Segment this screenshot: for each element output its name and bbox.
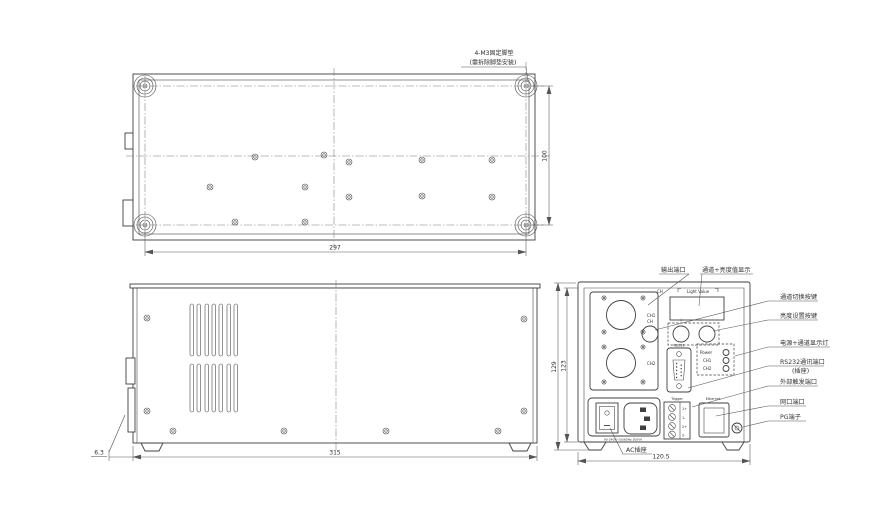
led-label-power: Power <box>700 350 712 355</box>
foot-left <box>141 443 163 451</box>
side-view: 315 6.3 <box>91 280 540 461</box>
bottom-view: 4-M3固定脚垫 (需拆除脚垫安装) 297 100 <box>123 49 553 256</box>
callout-pg-terminal: PG端子 <box>780 413 801 421</box>
engineering-drawing-page: 4-M3固定脚垫 (需拆除脚垫安装) 297 100 <box>0 0 888 522</box>
dim-315: 315 <box>329 450 341 457</box>
dim-297: 297 <box>329 245 341 252</box>
button-plus-label: + <box>679 318 682 323</box>
callout-ac-socket: AC插座 <box>626 446 647 454</box>
foot-right <box>509 443 531 451</box>
trigger-pin-2p: 2+ <box>682 425 687 429</box>
foot-note-line1: 4-M3固定脚垫 <box>475 49 514 57</box>
button-ch-label: CH <box>647 319 653 324</box>
ethernet-label: Ethernet <box>706 397 721 401</box>
dim-123: 123 <box>561 360 568 372</box>
callout-lan-port: 网口端口 <box>780 398 805 406</box>
callout-display: 通道+亮度值显示 <box>702 266 751 274</box>
led-label-ch1: CH1 <box>703 358 712 363</box>
callout-rs232-port: RS232通讯端口 <box>780 358 825 366</box>
side-connector-block-2 <box>128 388 135 432</box>
drawing-svg: 4-M3固定脚垫 (需拆除脚垫安装) 297 100 <box>0 0 888 522</box>
dim-6-3: 6.3 <box>94 450 104 457</box>
callout-output-port: 输出端口 <box>661 266 686 274</box>
display-header-value: Light Value <box>687 289 710 294</box>
callout-channel-switch: 通道切换按键 <box>780 293 817 301</box>
ac-rating-text: 90-240V~50/60Hz 300VA <box>604 438 643 442</box>
side-connector-block-1 <box>126 358 135 384</box>
dim-129: 129 <box>551 361 558 373</box>
led-label-ch2: CH2 <box>703 366 712 371</box>
foot-note-line2: (需拆除脚垫安装) <box>470 59 517 67</box>
callout-brightness-set: 亮度设置按键 <box>780 312 817 320</box>
display-header-ch: CH <box>657 289 663 294</box>
trigger-pin-1p: 1+ <box>682 407 687 411</box>
trigger-label: Trigger <box>670 397 683 401</box>
rear-panel-view: CH1 CH2 CH Light Value CH + - RS232 <box>551 282 750 465</box>
callout-rs232-port-sub: (插座) <box>792 367 809 375</box>
callout-trigger-port: 外部触发端口 <box>780 378 817 386</box>
callout-indicator-leds: 电源+通道显示灯 <box>780 339 829 347</box>
dim-100: 100 <box>542 150 549 162</box>
side-connector-tab-2 <box>123 200 134 226</box>
label-ch1: CH1 <box>647 313 656 318</box>
top-lid-edge <box>130 284 540 288</box>
dim-120-5: 120.5 <box>652 454 669 461</box>
rs232-label: RS232 <box>674 344 685 348</box>
label-ch2: CH2 <box>647 361 656 366</box>
